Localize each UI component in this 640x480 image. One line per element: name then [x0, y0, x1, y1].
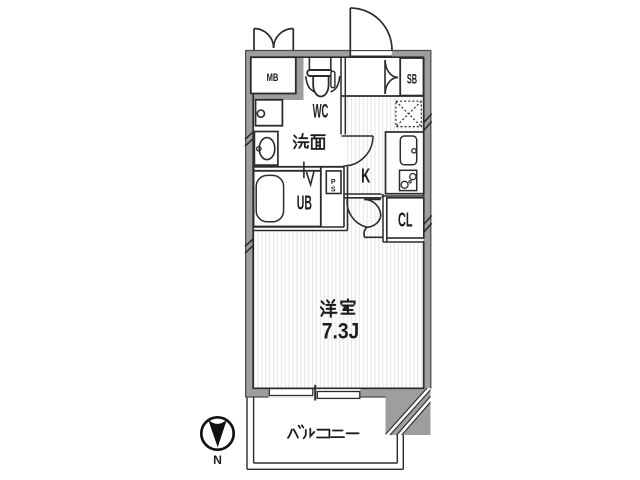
- svg-text:K: K: [361, 166, 371, 188]
- svg-text:WC: WC: [313, 101, 329, 123]
- svg-text:N: N: [213, 453, 222, 467]
- svg-text:CL: CL: [398, 208, 413, 231]
- svg-text:MB: MB: [267, 72, 279, 84]
- svg-text:SB: SB: [407, 70, 417, 86]
- svg-text:S: S: [331, 187, 336, 194]
- svg-text:UB: UB: [297, 192, 312, 215]
- svg-text:P: P: [331, 179, 336, 186]
- svg-text:7.3J: 7.3J: [322, 318, 360, 343]
